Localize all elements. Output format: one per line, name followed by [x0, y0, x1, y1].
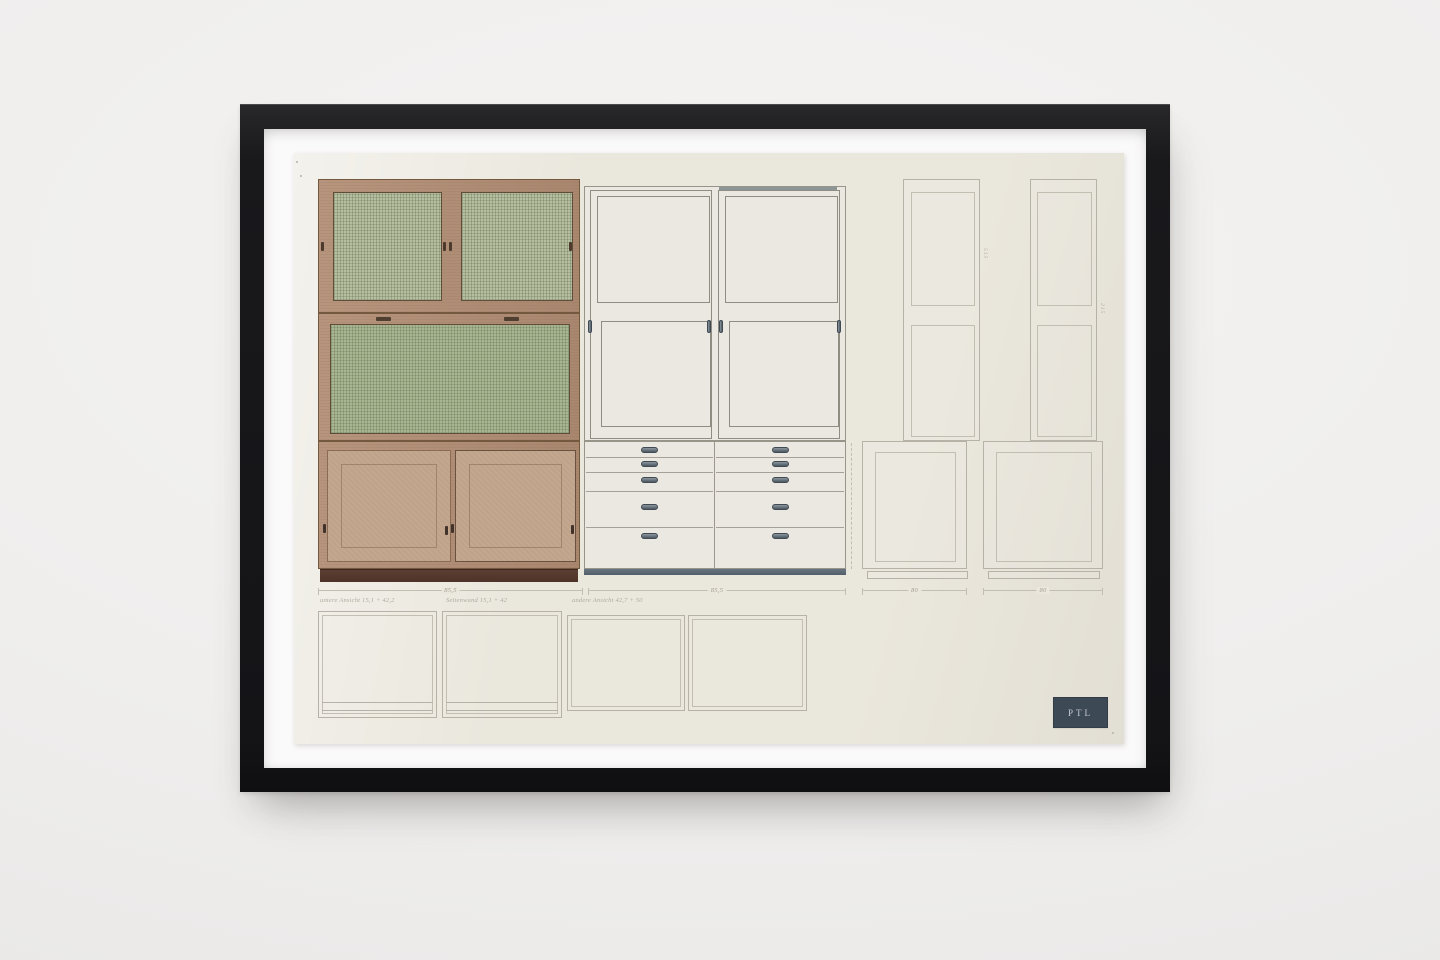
door-pull	[571, 525, 574, 534]
plan-inner-line	[692, 619, 803, 707]
drawer-pull	[772, 504, 789, 510]
annotation-plan-2: Seitenwand 15,1 + 42	[446, 597, 507, 604]
annotation-plan-1: untere Ansicht 15,1 + 42,2	[320, 597, 395, 604]
drawer-pull	[772, 447, 789, 453]
drawer-pull	[772, 477, 789, 483]
drawer	[716, 458, 844, 473]
plan-inner-line	[446, 615, 558, 714]
dimension-line-middle-cabinet: 85,5	[588, 590, 846, 591]
door-handle	[707, 320, 711, 333]
paper-speck	[1112, 732, 1114, 734]
drawer-pull	[772, 533, 789, 539]
plan-view-1	[318, 611, 437, 718]
paper-speck	[300, 175, 302, 177]
pencil-panel-a-upper	[911, 192, 975, 306]
dimension-line-square-c: 80	[862, 590, 967, 591]
dimension-label: 80	[1036, 587, 1049, 594]
drawer-pull	[641, 504, 658, 510]
pencil-panel-a-lower	[911, 325, 975, 437]
door-pull	[569, 242, 572, 251]
flap-unit-wood-frame	[318, 313, 580, 441]
drawer-pull	[641, 533, 658, 539]
pencil-square-c-inner	[875, 452, 956, 562]
plan-view-2	[442, 611, 562, 718]
cabinet-elevation-colored	[318, 179, 580, 581]
plinth	[320, 569, 578, 582]
door-lower-panel	[729, 321, 839, 427]
door-pull	[451, 524, 454, 533]
panel-a-height-dim: 515	[982, 248, 988, 259]
door-pull	[321, 242, 324, 251]
dimension-line-square-d: 80	[983, 590, 1103, 591]
drawer	[586, 458, 713, 473]
drawer	[716, 473, 844, 492]
cabinet-elevation-white	[584, 186, 846, 441]
door-lower-panel	[601, 321, 711, 427]
plan-view-4	[688, 615, 807, 711]
mesh-door-left	[333, 192, 442, 301]
drawer-pull	[641, 461, 658, 467]
drawer	[716, 528, 844, 567]
plan-inner-line	[322, 615, 433, 714]
mesh-door-right	[461, 192, 573, 301]
dimension-label: 85,5	[441, 587, 460, 594]
plan-bottom-band	[322, 702, 433, 711]
pencil-square-d-inner	[996, 452, 1092, 562]
drawer-divider	[714, 442, 715, 568]
dimension-chain	[851, 443, 852, 569]
paper-speck	[296, 161, 298, 163]
drawer	[586, 473, 713, 492]
drawer-stack-right	[716, 443, 844, 567]
door-handle	[719, 320, 723, 333]
panel-b-height-dim: 215	[1099, 303, 1105, 314]
dimension-line-left-cabinet: 85,5	[318, 590, 583, 591]
top-unit-wood-frame	[318, 179, 580, 313]
door-handle	[588, 320, 592, 333]
mesh-flap-panel	[330, 324, 570, 434]
white-door-left	[590, 190, 712, 439]
pencil-panel-b	[1030, 179, 1097, 441]
door-pull	[445, 526, 448, 535]
sliding-door-right	[455, 450, 576, 562]
flap-latch	[504, 317, 519, 321]
base-unit-wood-frame	[318, 441, 580, 569]
door-panel-line	[469, 464, 562, 548]
flap-latch	[376, 317, 391, 321]
plan-bottom-band	[446, 702, 558, 711]
drawer	[716, 443, 844, 458]
door-upper-panel	[597, 196, 710, 303]
drawer-pull	[772, 461, 789, 467]
pencil-panel-b-lower	[1037, 325, 1092, 437]
drawer	[586, 443, 713, 458]
door-pull	[449, 242, 452, 251]
door-pull	[443, 242, 446, 251]
pencil-panel-b-upper	[1037, 192, 1092, 306]
drawer	[716, 492, 844, 528]
sliding-door-left	[327, 450, 451, 562]
drawer	[586, 528, 713, 567]
dimension-label: 85,5	[708, 587, 727, 594]
plan-inner-line	[571, 619, 681, 707]
pencil-panel-a	[903, 179, 980, 441]
base-rail	[584, 569, 846, 575]
pencil-square-d-base	[988, 571, 1100, 579]
mat-board: 515 215 85,5 85,5	[264, 129, 1146, 768]
door-upper-panel	[725, 196, 838, 303]
drawer	[586, 492, 713, 528]
dimension-label: 80	[908, 587, 921, 594]
pencil-square-c-base	[867, 571, 968, 579]
door-pull	[323, 524, 326, 533]
drawer-unit	[584, 441, 846, 569]
drawer-stack-left	[586, 443, 713, 567]
plan-view-3	[567, 615, 685, 711]
door-handle	[837, 320, 841, 333]
pencil-square-c	[862, 441, 967, 569]
drawing-paper: 515 215 85,5 85,5	[294, 153, 1124, 744]
white-door-right	[718, 190, 840, 439]
drawer-pull	[641, 447, 658, 453]
picture-frame: 515 215 85,5 85,5	[240, 104, 1170, 792]
pencil-square-d	[983, 441, 1103, 569]
ptl-stamp: PTL	[1053, 697, 1108, 728]
annotation-plan-3: andere Ansicht 42,7 + 50	[572, 597, 643, 604]
drawer-pull	[641, 477, 658, 483]
door-panel-line	[341, 464, 437, 548]
